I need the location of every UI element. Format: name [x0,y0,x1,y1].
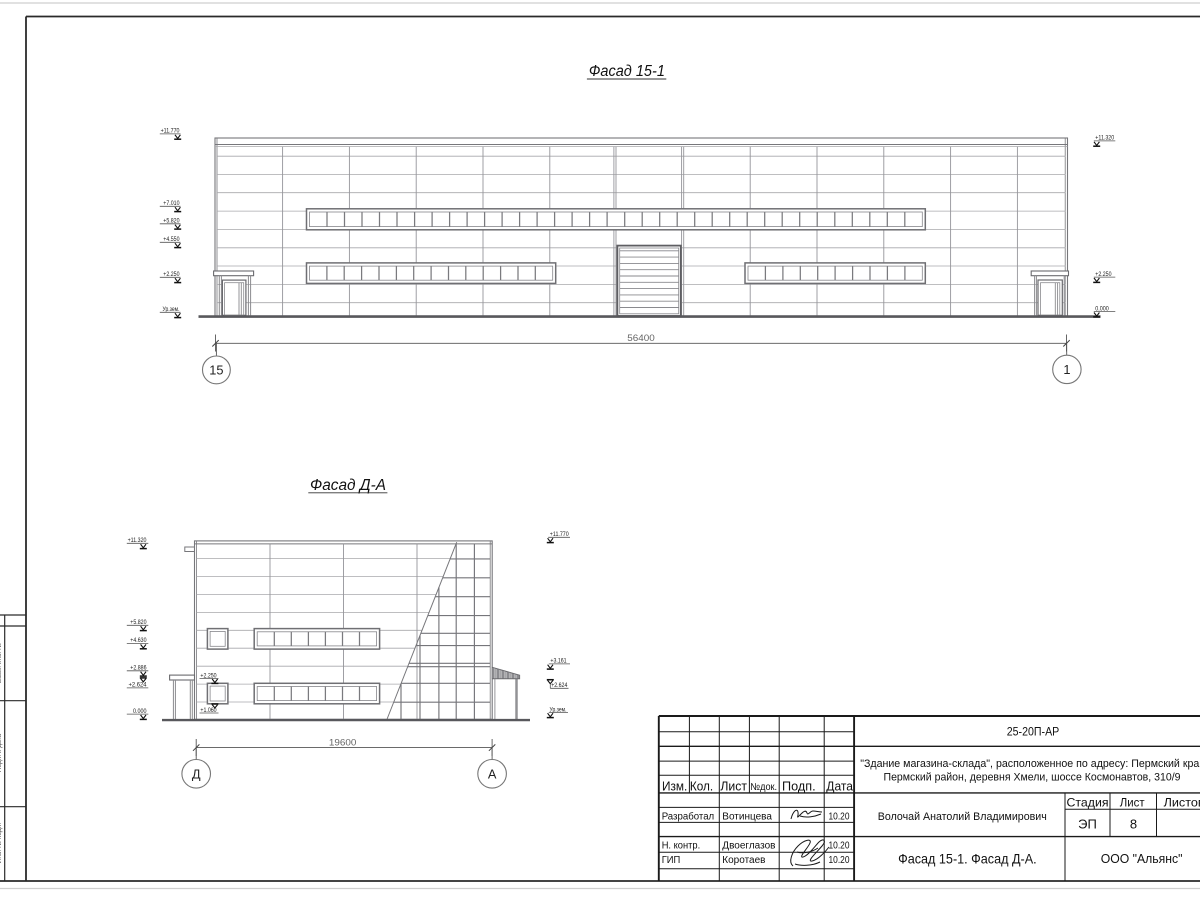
svg-text:Стадия: Стадия [1067,795,1109,809]
svg-text:Подп. и дата: Подп. и дата [0,733,3,772]
svg-text:Коротаев: Коротаев [722,855,765,866]
svg-text:Подп.: Подп. [782,780,816,794]
svg-text:15: 15 [209,362,223,377]
svg-text:Фасад 15-1. Фасад Д-А.: Фасад 15-1. Фасад Д-А. [898,850,1037,866]
svg-text:№док.: №док. [750,782,777,793]
svg-text:Фасад 15-1: Фасад 15-1 [589,63,665,80]
svg-text:56400: 56400 [627,333,655,343]
svg-text:Взам. инв. №: Взам. инв. № [0,643,3,683]
svg-text:Вотинцева: Вотинцева [722,812,772,823]
svg-text:Кол.: Кол. [690,780,713,794]
svg-text:19600: 19600 [329,737,357,747]
svg-text:Разработал: Разработал [662,812,715,823]
svg-text:+2.624: +2.624 [551,682,568,689]
svg-text:25-20П-АР: 25-20П-АР [1007,724,1060,738]
svg-text:Лист: Лист [720,780,747,794]
svg-text:Лист: Лист [1120,795,1145,809]
svg-text:Волочай Анатолий Владимирович: Волочай Анатолий Владимирович [878,811,1047,823]
svg-text:8: 8 [1130,817,1137,832]
svg-text:Изм.: Изм. [662,780,687,794]
svg-text:Инв. № подл.: Инв. № подл. [0,823,3,864]
svg-text:"Здание магазина-склада", расп: "Здание магазина-склада", расположенное … [860,758,1200,770]
svg-text:10.20: 10.20 [829,855,850,866]
svg-text:ЭП: ЭП [1078,817,1097,832]
svg-text:10.20: 10.20 [829,840,850,851]
svg-text:Двоеглазов: Двоеглазов [722,841,775,852]
svg-text:Н. контр.: Н. контр. [662,841,701,852]
svg-text:Дата: Дата [826,780,853,794]
svg-text:Листов: Листов [1164,795,1200,809]
svg-text:Пермский район, деревня Хмели,: Пермский район, деревня Хмели, шоссе Кос… [884,771,1181,783]
svg-text:1: 1 [1063,362,1070,377]
svg-text:ГИП: ГИП [662,855,681,866]
svg-text:А: А [488,766,497,781]
svg-text:10.20: 10.20 [829,811,850,822]
svg-text:ООО "Альянс": ООО "Альянс" [1101,851,1183,866]
svg-text:Д: Д [192,766,201,781]
svg-text:Фасад Д-А: Фасад Д-А [310,477,386,494]
